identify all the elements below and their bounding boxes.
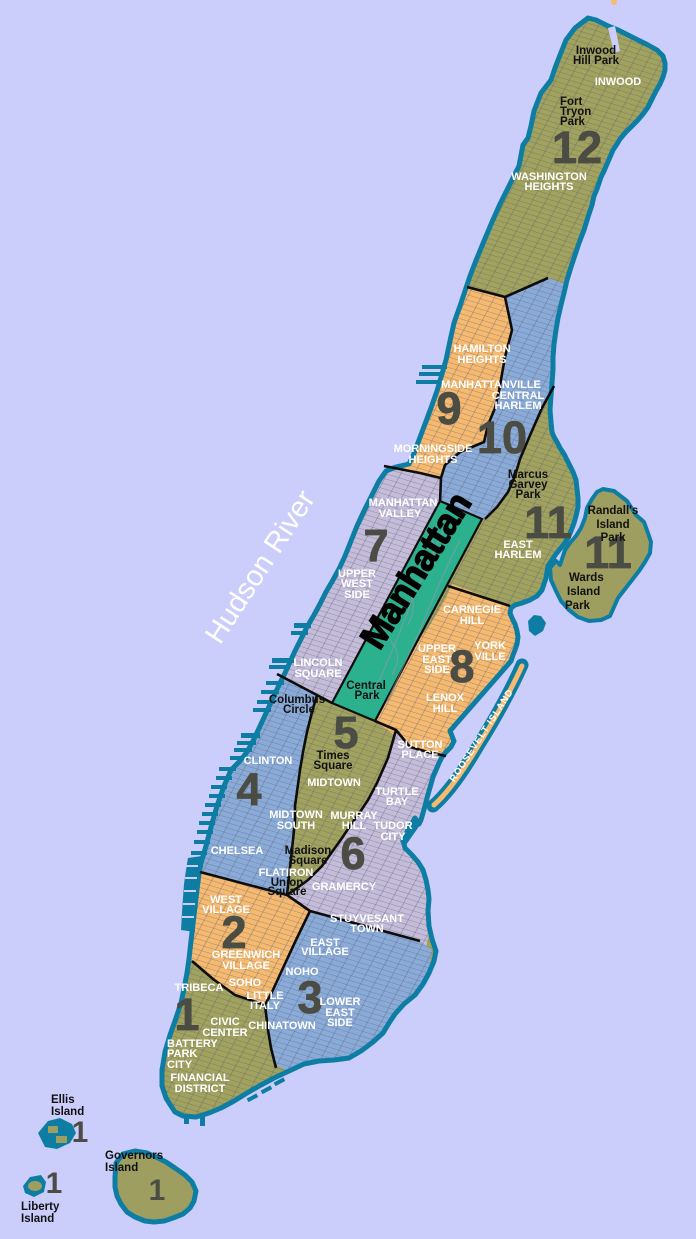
- svg-text:HILL: HILL: [433, 703, 458, 715]
- svg-text:VILLAGE: VILLAGE: [222, 960, 270, 972]
- svg-text:VALLEY: VALLEY: [379, 508, 422, 520]
- svg-text:CITY: CITY: [380, 831, 406, 843]
- svg-text:VILLE: VILLE: [474, 651, 505, 663]
- svg-text:HILL: HILL: [460, 615, 485, 627]
- svg-text:Liberty: Liberty: [21, 1201, 60, 1213]
- svg-text:1: 1: [46, 1167, 63, 1200]
- svg-text:Square: Square: [314, 760, 353, 772]
- svg-text:Island: Island: [51, 1106, 84, 1118]
- svg-text:SIDE: SIDE: [424, 664, 450, 676]
- svg-text:Park: Park: [560, 116, 586, 128]
- svg-text:HARLEM: HARLEM: [494, 549, 541, 561]
- svg-text:FLATIRON: FLATIRON: [259, 867, 314, 879]
- svg-text:4: 4: [236, 764, 261, 815]
- svg-text:7: 7: [363, 520, 388, 571]
- svg-text:Randall's: Randall's: [588, 505, 639, 517]
- svg-text:Park: Park: [516, 489, 542, 501]
- svg-text:6: 6: [340, 828, 365, 879]
- svg-text:BAY: BAY: [386, 796, 409, 808]
- svg-text:INWOOD: INWOOD: [595, 76, 641, 88]
- svg-text:PLACE: PLACE: [401, 749, 438, 761]
- svg-text:Square: Square: [268, 886, 307, 898]
- svg-text:1: 1: [72, 1116, 89, 1149]
- svg-text:MIDTOWN: MIDTOWN: [307, 777, 361, 789]
- svg-text:1: 1: [149, 1174, 166, 1207]
- svg-text:GRAMERCY: GRAMERCY: [312, 881, 377, 893]
- svg-text:Park: Park: [601, 532, 627, 544]
- svg-text:HEIGHTS: HEIGHTS: [525, 181, 574, 193]
- svg-text:Wards: Wards: [569, 572, 604, 584]
- svg-text:HEIGHTS: HEIGHTS: [409, 454, 458, 466]
- svg-text:VILLAGE: VILLAGE: [301, 946, 349, 958]
- svg-text:TRIBECA: TRIBECA: [175, 982, 224, 994]
- svg-text:Park: Park: [565, 600, 591, 612]
- svg-text:Circle: Circle: [283, 704, 315, 716]
- svg-text:VILLAGE: VILLAGE: [202, 904, 250, 916]
- svg-text:12: 12: [552, 122, 602, 173]
- svg-text:SIDE: SIDE: [327, 1017, 353, 1029]
- svg-text:HEIGHTS: HEIGHTS: [458, 354, 507, 366]
- svg-text:Governors: Governors: [105, 1150, 163, 1162]
- svg-text:Island: Island: [105, 1162, 138, 1174]
- svg-text:Island: Island: [596, 519, 629, 531]
- svg-text:SQUARE: SQUARE: [294, 668, 341, 680]
- svg-text:CHINATOWN: CHINATOWN: [248, 1020, 315, 1032]
- svg-text:CITY: CITY: [167, 1059, 193, 1071]
- svg-text:Park: Park: [355, 690, 381, 702]
- svg-text:Island: Island: [21, 1213, 54, 1225]
- svg-text:NOHO: NOHO: [286, 966, 319, 978]
- svg-text:Hill Park: Hill Park: [573, 55, 620, 67]
- svg-text:HILL: HILL: [342, 820, 367, 832]
- svg-text:CLINTON: CLINTON: [244, 755, 293, 767]
- svg-text:CHELSEA: CHELSEA: [211, 845, 264, 857]
- svg-text:Ellis: Ellis: [51, 1094, 75, 1106]
- svg-text:SOHO: SOHO: [229, 977, 262, 989]
- svg-text:SOUTH: SOUTH: [277, 820, 316, 832]
- svg-text:1: 1: [174, 989, 199, 1040]
- svg-text:SIDE: SIDE: [344, 589, 370, 601]
- svg-text:ITALY: ITALY: [250, 1000, 281, 1012]
- svg-text:10: 10: [477, 412, 527, 463]
- svg-text:HARLEM: HARLEM: [494, 400, 541, 412]
- svg-text:Island: Island: [567, 586, 600, 598]
- svg-text:Square: Square: [289, 855, 328, 867]
- svg-text:TOWN: TOWN: [350, 923, 383, 935]
- svg-text:DISTRICT: DISTRICT: [175, 1083, 226, 1095]
